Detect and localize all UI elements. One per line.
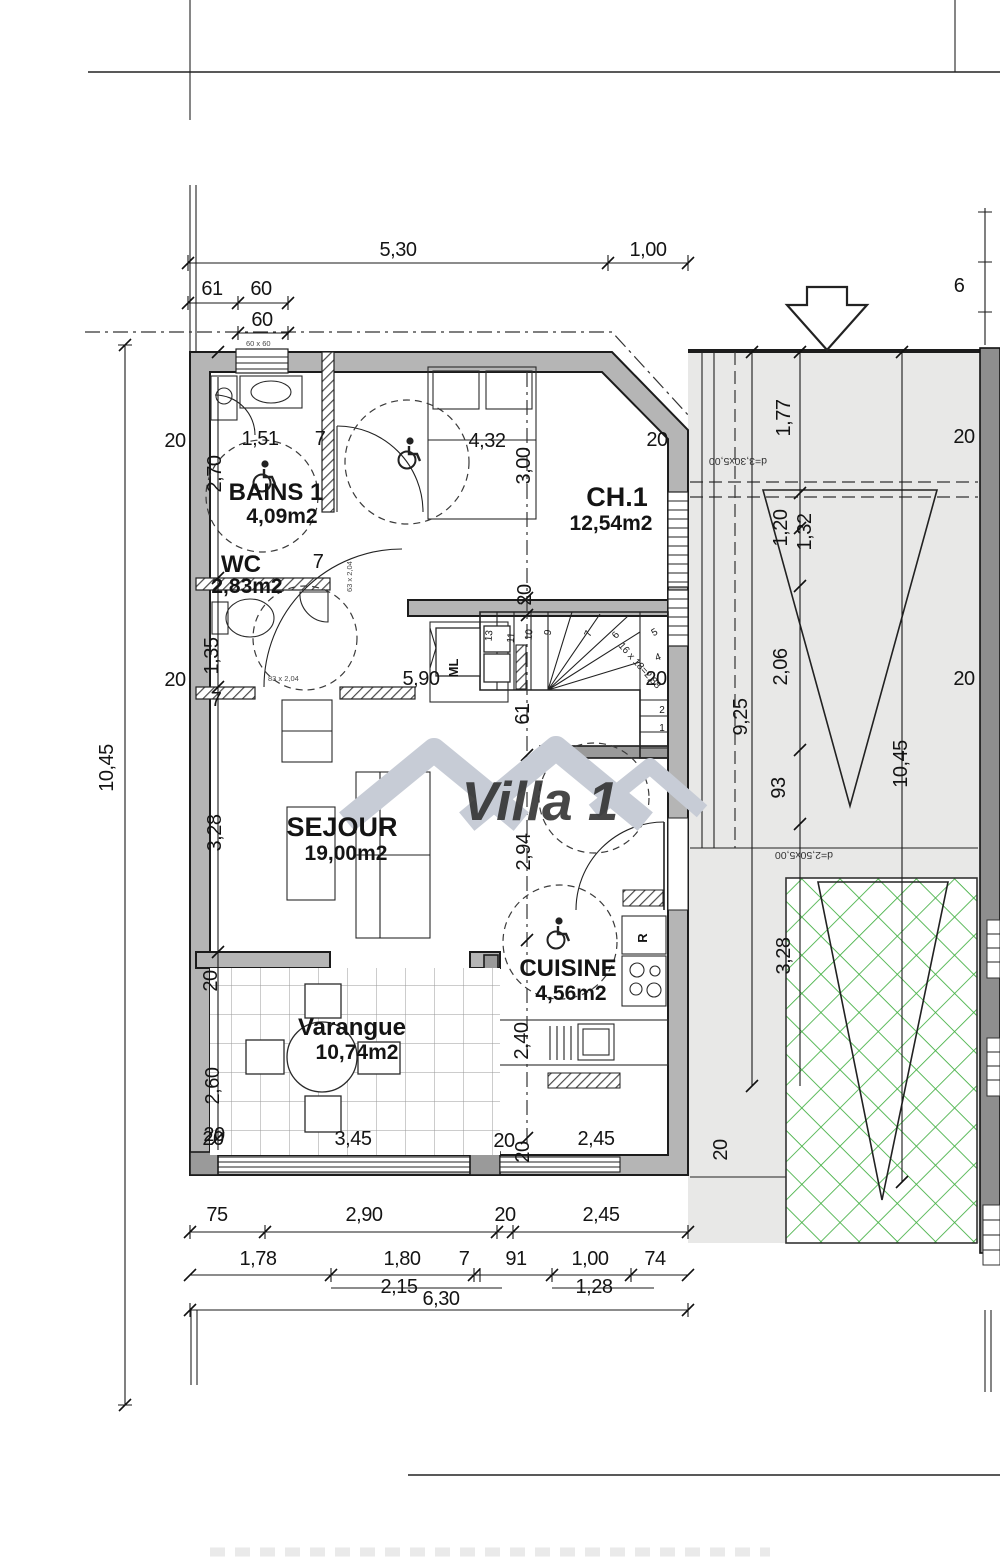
dimension-label: 2,90 [346,1204,383,1226]
dimension-label: 10,45 [890,740,912,788]
dimension-label: 3,28 [773,937,795,974]
dimension-label: 5,90 [403,668,440,690]
room-area-varangue: 10,74m2 [316,1041,399,1064]
stair-step-number: 13 [484,629,496,641]
stair-step-number: 11 [506,632,518,644]
room-area-bains: 4,09m2 [246,505,317,528]
wall-ch1-bottom [408,600,668,616]
dimension-label: 7 [459,1248,470,1270]
dimension-label: 20 [646,429,668,451]
room-label-bains: BAINS 1 [229,479,324,506]
dimension-label: 2,60 [202,1067,224,1104]
watermark-title: Villa 1 [462,770,619,832]
pillow [433,371,479,409]
chair [305,1096,341,1132]
room-area-ch1: 12,54m2 [570,512,653,535]
room-area-sejour: 19,00m2 [305,842,388,865]
dimension-label: 2,45 [583,1204,620,1226]
dimension-label: 3,45 [335,1128,372,1150]
dimension-label: 2,45 [578,1128,615,1150]
chair [305,984,341,1018]
dimension-label: 1,32 [794,513,816,550]
floor-plan-page: Villa 1 BAINS 1 4,09m2 WC 2,83m2 CH.1 12… [0,0,1000,1563]
dimension-label: 1,35 [201,637,223,674]
dimension-label: 7 [313,551,324,573]
entrance-arrow-icon [787,287,867,350]
dimension-label: 20 [512,1141,534,1163]
parking-tag-green: d=2,50x5,00 [775,849,833,861]
fridge-label: R [635,933,650,943]
dimension-label: 1,78 [240,1248,277,1270]
dimension-label: 60 [250,278,272,300]
dimension-label: 75 [206,1204,228,1226]
dimension-label: 20 [514,584,536,606]
ml-label: ML [446,659,461,678]
wc-sink [300,592,328,622]
floor-plan-canvas: Villa 1 BAINS 1 4,09m2 WC 2,83m2 CH.1 12… [0,0,1000,1563]
dimension-label: 1,28 [576,1276,613,1298]
dimension-label: 1,80 [384,1248,421,1270]
dimension-label: 1,00 [572,1248,609,1270]
dimension-label: 20 [202,1128,224,1150]
stair-step-number: 10 [524,628,536,640]
dimension-label: 7 [315,428,326,450]
wall-stair-stub [516,645,526,689]
green-area [786,878,977,1243]
dimension-label: 2,94 [513,833,535,870]
dimension-label: 61 [512,703,534,725]
stair-step-numbers: 1245679101113 [484,626,666,734]
stair-step-number: 4 [654,651,663,663]
dimension-label: 20 [953,426,975,448]
pillow [486,371,532,409]
property-dash-line [85,332,700,428]
wall-wc-sejour-a [196,687,255,699]
door-tag-2: 83 x 2,04 [268,674,299,683]
dimension-label: 20 [164,430,186,452]
room-area-wc: 2,83m2 [211,575,282,598]
entry-door-opening [668,818,688,910]
chair [246,1040,284,1074]
dimension-label: 1,51 [242,428,279,450]
room-area-cuisine: 4,56m2 [535,982,606,1005]
dimension-label: 2,15 [381,1276,418,1298]
dimension-label: 60 [251,309,273,331]
dimension-label: 6 [954,275,965,297]
dimension-label: 20 [493,1130,515,1152]
watermark: Villa 1 [356,748,696,832]
dimension-label: 7 [211,689,222,711]
room-label-wc: WC [221,551,261,578]
stove [622,956,666,1006]
dimension-label: 6,30 [423,1288,460,1310]
dimension-label: 1,00 [630,239,667,261]
dimension-label: 2,70 [204,455,226,492]
stair-step-number: 6 [610,629,622,641]
door-tag: 63 x 2,04 [345,561,354,592]
dimension-label: 20 [164,669,186,691]
dimension-label: 74 [644,1248,666,1270]
stair-step-number: 9 [543,628,555,636]
ch1-furniture [345,367,536,524]
washbasin [251,381,291,403]
varangue-railing [218,1157,470,1172]
dimension-label: 1,77 [773,399,795,436]
window-ch1-b [668,590,688,646]
dimension-label: 4,32 [469,430,506,452]
dimension-label: 3,00 [513,447,535,484]
dimension-label: 9,25 [730,698,752,735]
parking-tag-drive: d=3,30x5,00 [709,455,767,467]
dimension-label: 2,06 [770,648,792,685]
dimension-label: 20 [953,668,975,690]
stair-step-number: 5 [650,626,661,639]
stair-step-number: 2 [659,705,665,716]
window-tag: 60 x 60 [246,339,271,348]
dimension-label: 1,20 [770,509,792,546]
room-label-cuisine: CUISINE [519,955,616,982]
dimension-label: 93 [768,777,790,799]
dimension-label: 5,30 [380,239,417,261]
door-arc-hall [264,549,402,687]
dimension-label: 20 [710,1139,732,1161]
toilet-icon [226,599,274,637]
dimension-label: 10,45 [96,744,118,792]
room-label-ch1: CH.1 [586,482,648,512]
dimension-label: 3,28 [204,814,226,851]
room-label-sejour: SEJOUR [286,812,397,842]
dimension-label: 20 [645,668,667,690]
neighbor-wall [980,348,1000,1265]
dimension-label: 20 [494,1204,516,1226]
stair-step-number: 1 [659,723,665,734]
dimension-label: 61 [201,278,223,300]
dimension-label: 20 [200,970,222,992]
room-label-varangue: Varangue [298,1014,406,1041]
dimension-label: 91 [505,1248,527,1270]
dimension-label: 2,40 [511,1022,533,1059]
